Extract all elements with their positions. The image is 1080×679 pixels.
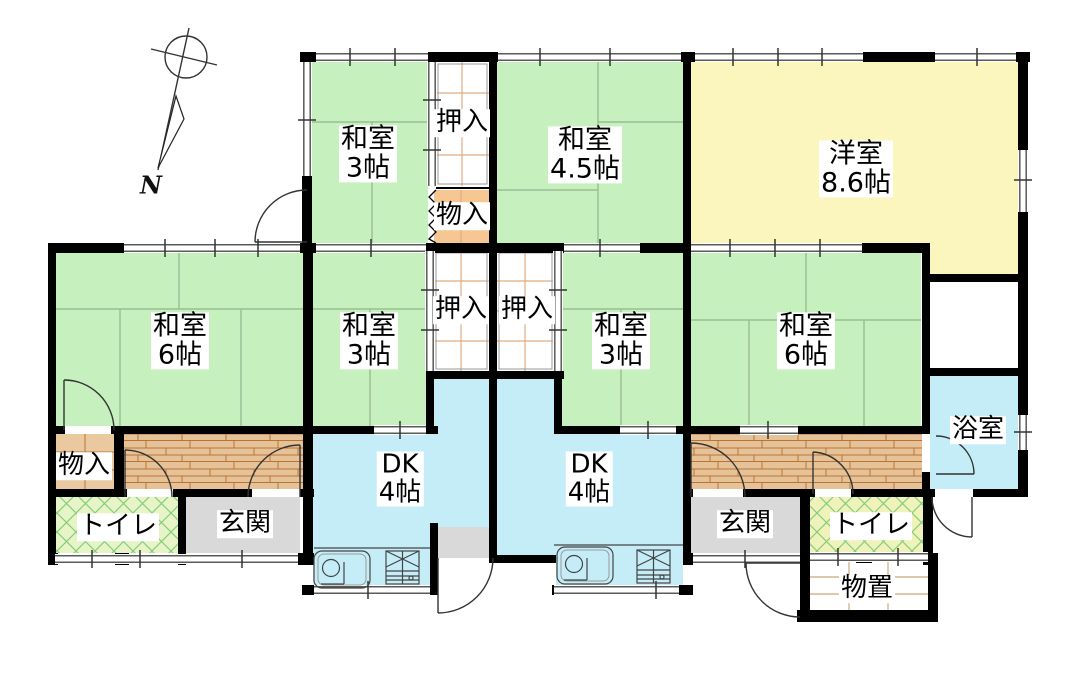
- door-swing-icon: [932, 497, 972, 537]
- wall: [925, 368, 1028, 376]
- wall: [554, 371, 562, 434]
- room-dk-right: [497, 379, 554, 434]
- wall: [800, 489, 810, 622]
- wall: [554, 426, 620, 434]
- wall: [178, 489, 186, 565]
- wall: [925, 274, 1028, 282]
- label-genkan-right: 玄関: [717, 510, 773, 538]
- label-oshiire-top: 押入: [434, 109, 490, 137]
- wall: [430, 523, 438, 595]
- wall: [798, 426, 929, 434]
- label-toilet-right: トイレ: [830, 512, 912, 540]
- hallway-left-floor: [124, 434, 303, 489]
- label-washitsu-3-top: 和室3帖: [339, 125, 397, 182]
- compass-icon: [151, 28, 217, 170]
- label-dk-left: DK4帖: [377, 451, 424, 506]
- label-toilet-left: トイレ: [77, 513, 159, 541]
- wall: [426, 371, 434, 434]
- label-dk-right: DK4帖: [566, 451, 613, 506]
- wall: [114, 426, 124, 497]
- porch-floor: [438, 527, 489, 558]
- wall: [489, 52, 497, 563]
- label-yoshitsu-86: 洋室8.6帖: [819, 140, 893, 197]
- wall: [851, 489, 931, 497]
- wall: [111, 426, 314, 434]
- floor-plan: 和室3帖 押入 物入 和室4.5帖 洋室8.6帖 和室6帖 和室3帖 押入 押入…: [0, 0, 1080, 679]
- room-unlabeled: [930, 282, 1018, 368]
- wall: [314, 426, 374, 434]
- wall: [489, 555, 556, 563]
- wall: [922, 243, 930, 434]
- wall: [683, 52, 691, 563]
- door-swing-icon: [746, 563, 800, 617]
- label-storage: 物置: [839, 575, 895, 603]
- room-dk-left: [434, 379, 489, 434]
- label-bathroom: 浴室: [950, 416, 1006, 444]
- label-washitsu-3-mid: 和室3帖: [340, 312, 398, 369]
- wall: [679, 585, 693, 595]
- wall: [797, 610, 938, 622]
- label-oshiire-left: 押入: [433, 296, 489, 324]
- label-monoire-left: 物入: [56, 452, 112, 480]
- wall: [303, 243, 313, 561]
- hallway-right-floor: [691, 434, 922, 489]
- wall: [302, 585, 316, 595]
- label-washitsu-6-left: 和室6帖: [151, 312, 209, 369]
- label-oshiire-right: 押入: [499, 296, 555, 324]
- wall: [48, 243, 56, 565]
- label-monoire-top: 物入: [434, 202, 490, 230]
- label-washitsu-45: 和室4.5帖: [548, 126, 622, 183]
- wall: [691, 426, 740, 434]
- label-washitsu-6-right: 和室6帖: [777, 312, 835, 369]
- door-swing-icon: [255, 190, 307, 242]
- compass-north-label: N: [140, 171, 162, 200]
- label-genkan-left: 玄関: [217, 510, 273, 538]
- label-washitsu-3-right: 和室3帖: [592, 312, 650, 369]
